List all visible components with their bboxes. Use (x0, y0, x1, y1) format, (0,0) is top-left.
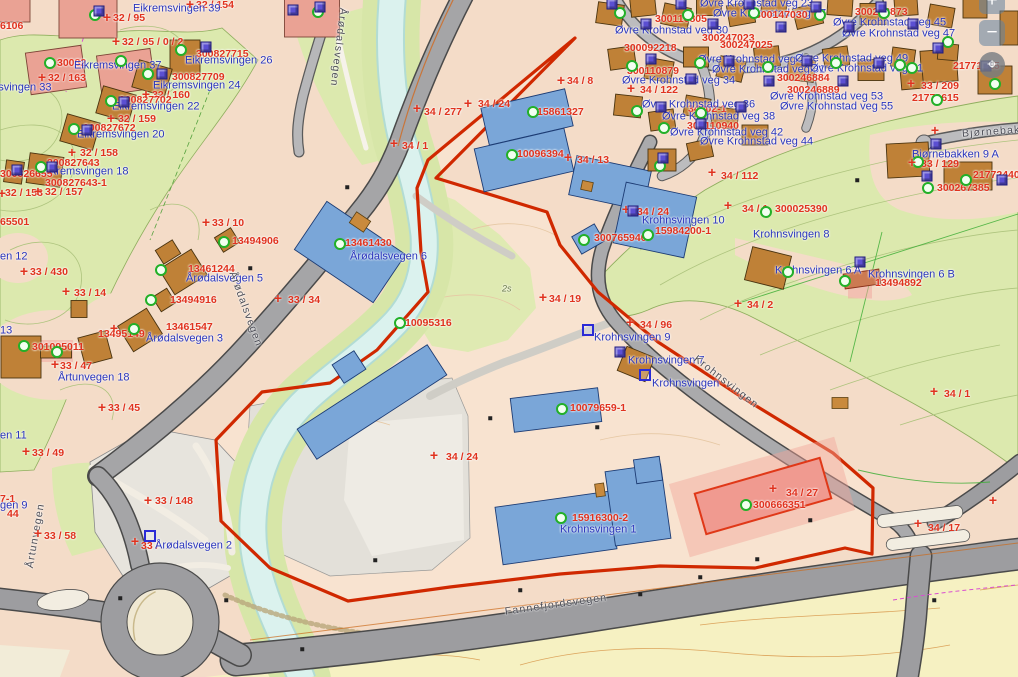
house (0, 0, 30, 22)
house (285, 0, 340, 37)
house (822, 46, 849, 68)
house (711, 106, 740, 129)
house (683, 95, 711, 119)
house (927, 4, 955, 28)
house (25, 45, 86, 94)
house (57, 346, 72, 358)
zoom-in-button[interactable]: + (979, 0, 1005, 14)
house (900, 70, 923, 90)
house (1, 336, 41, 378)
house (726, 1, 755, 26)
house (894, 0, 918, 16)
house (648, 149, 676, 171)
house (644, 57, 674, 82)
house (26, 153, 64, 187)
house (697, 0, 722, 16)
house (59, 0, 117, 38)
house (684, 47, 709, 67)
house (827, 0, 853, 16)
map-canvas[interactable]: 610632 / 154Eikremsvingen 3932 / 9532 / … (0, 0, 1018, 677)
house (754, 46, 781, 69)
house (860, 4, 886, 25)
zoom-out-button[interactable]: − (979, 20, 1005, 46)
house (890, 47, 915, 69)
house (786, 58, 815, 83)
house (937, 43, 958, 61)
house (41, 346, 56, 358)
map-base (0, 0, 1018, 677)
house (596, 2, 625, 26)
house (742, 125, 768, 145)
house (4, 160, 25, 184)
house (71, 301, 87, 318)
house (761, 0, 788, 17)
house (648, 109, 675, 131)
house (170, 40, 200, 74)
house (858, 60, 884, 81)
house (581, 180, 594, 191)
house (608, 46, 637, 70)
map-zoom-controls: + − ⌖ (979, 0, 1005, 78)
building (633, 456, 662, 483)
house (630, 0, 657, 17)
house (886, 142, 930, 178)
house (613, 94, 642, 118)
house (832, 398, 848, 409)
house (944, 162, 992, 190)
house (595, 483, 606, 497)
locate-button[interactable]: ⌖ (979, 52, 1005, 78)
